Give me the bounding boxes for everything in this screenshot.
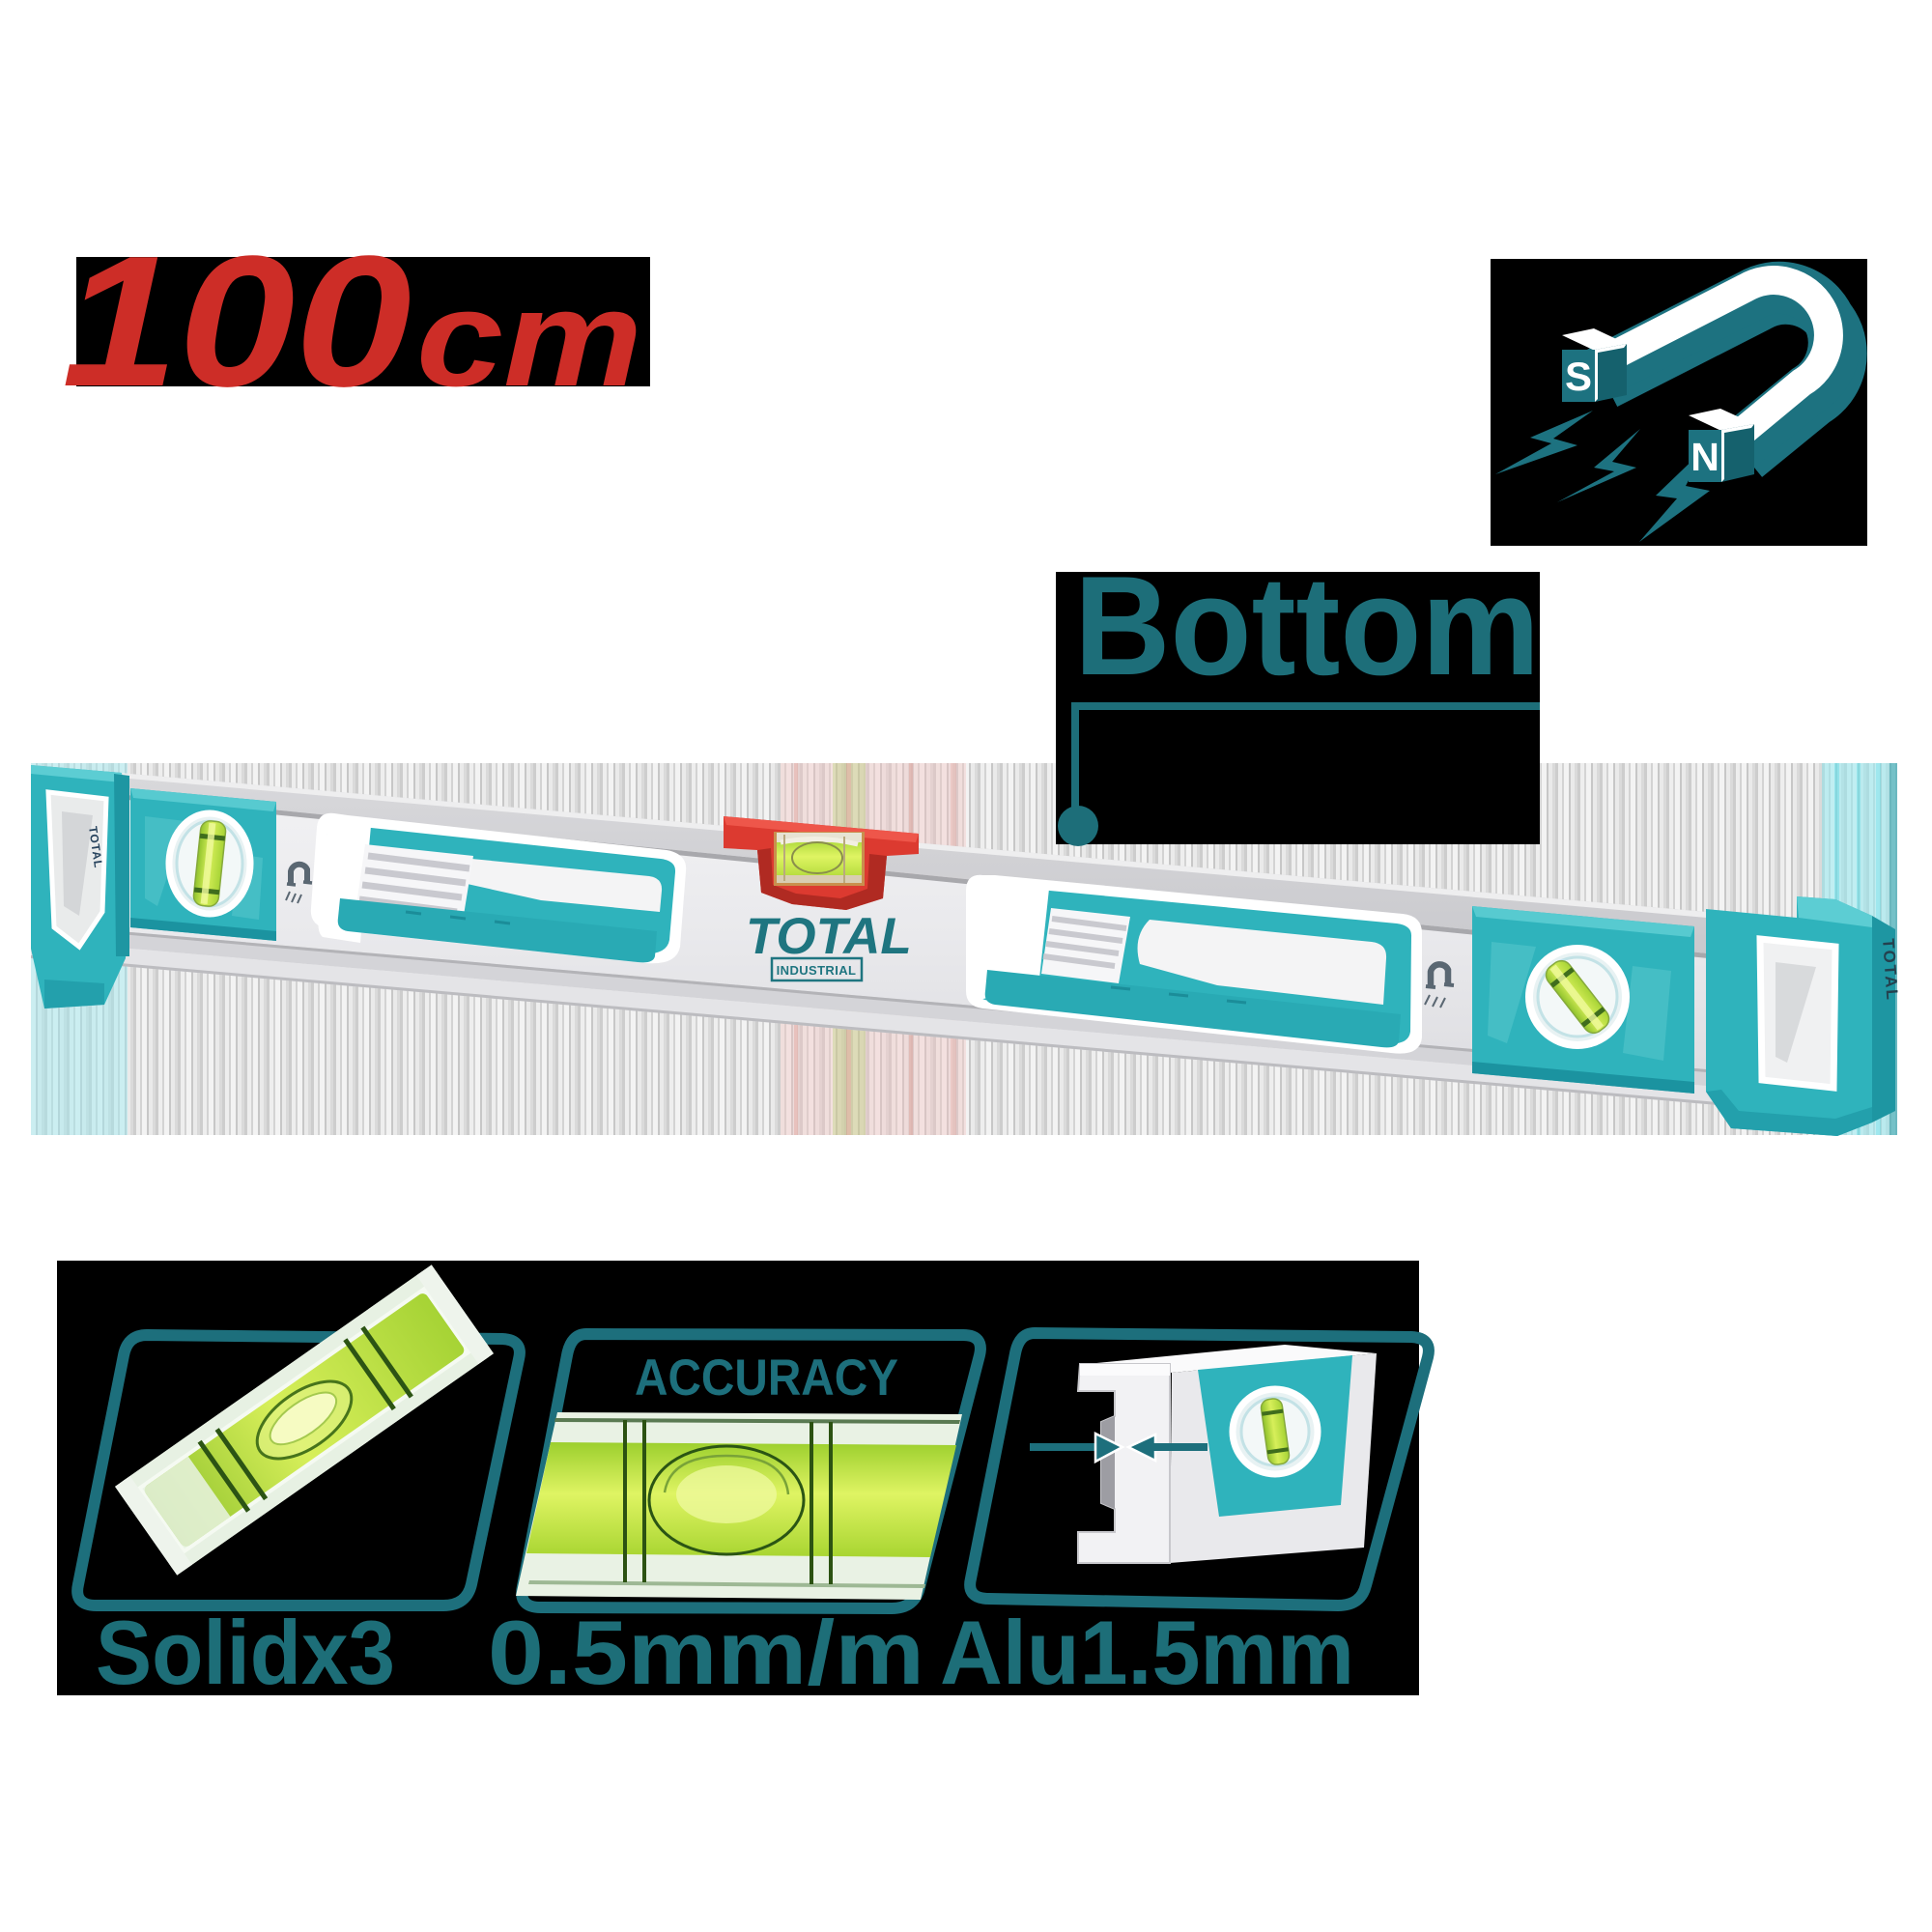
svg-text:Solidx3: Solidx3 bbox=[96, 1602, 395, 1703]
svg-text:Bottom: Bottom bbox=[1074, 547, 1540, 704]
svg-text:ACCURACY: ACCURACY bbox=[635, 1350, 898, 1406]
svg-text:cm: cm bbox=[416, 262, 642, 415]
svg-text:TOTAL: TOTAL bbox=[746, 908, 912, 965]
svg-text:INDUSTRIAL: INDUSTRIAL bbox=[777, 963, 857, 978]
svg-text:0.5mm/m: 0.5mm/m bbox=[488, 1602, 924, 1703]
svg-text:100: 100 bbox=[62, 216, 412, 425]
svg-text:S: S bbox=[1565, 354, 1592, 399]
svg-text:N: N bbox=[1690, 435, 1719, 479]
svg-text:Alu1.5mm: Alu1.5mm bbox=[940, 1602, 1354, 1703]
